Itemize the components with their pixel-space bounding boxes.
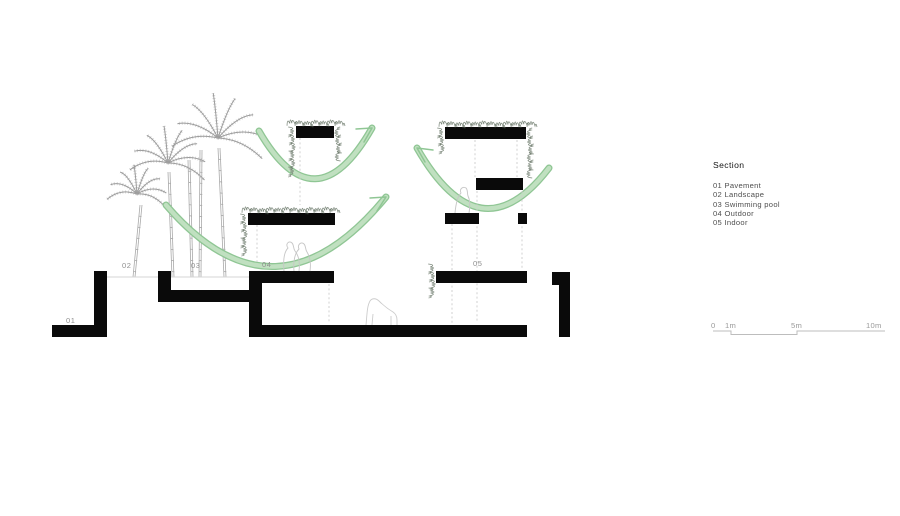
legend-item-pool: 03 Swimming pool [713, 200, 863, 209]
dashed-guides [257, 138, 522, 323]
label-03: 03 [191, 261, 201, 270]
building-section-slabs [52, 126, 570, 337]
label-01: 01 [66, 316, 76, 325]
pool-floor [158, 290, 255, 302]
tower2-ledge-stub [518, 213, 527, 224]
scale-tick-0: 0 [711, 321, 716, 330]
label-04: 04 [262, 260, 272, 269]
scale-tick-1m: 1m [725, 321, 736, 330]
label-02: 02 [122, 261, 132, 270]
tower2-mid-slab [476, 178, 523, 190]
scale-tick-5m: 5m [791, 321, 802, 330]
scale-tick-10m: 10m [866, 321, 882, 330]
label-05: 05 [473, 259, 483, 268]
right-wall [559, 272, 570, 337]
scale-bar: 0 1m 5m 10m [711, 321, 885, 335]
tower1-mid-slab [248, 213, 335, 225]
legend-item-indoor: 05 Indoor [713, 218, 863, 227]
right-wall-foot [552, 272, 560, 285]
scale-bar-line [713, 331, 885, 335]
palm-trees-sketch [107, 93, 263, 277]
legend-panel: Section 01 Pavement 02 Landscape 03 Swim… [713, 160, 863, 227]
main-floor-slab [249, 325, 527, 337]
pavement-floor [52, 325, 107, 337]
animal-figure-sketch [366, 299, 397, 325]
tower2-roof-slab [445, 127, 526, 139]
section-drawing: 01 02 03 04 05 0 1m 5m 10m [0, 0, 900, 516]
legend-item-outdoor: 04 Outdoor [713, 209, 863, 218]
legend-item-pavement: 01 Pavement [713, 181, 863, 190]
airflow-arrows [166, 128, 549, 267]
tower1-roof-slab [296, 126, 334, 138]
tower2-ledge-slab [445, 213, 479, 224]
legend-item-landscape: 02 Landscape [713, 190, 863, 199]
outdoor-deck-slab [249, 271, 334, 283]
indoor-upper-slab [436, 271, 527, 283]
section-diagram-page: 01 02 03 04 05 0 1m 5m 10m Section 01 Pa… [0, 0, 900, 516]
legend-title: Section [713, 160, 863, 170]
